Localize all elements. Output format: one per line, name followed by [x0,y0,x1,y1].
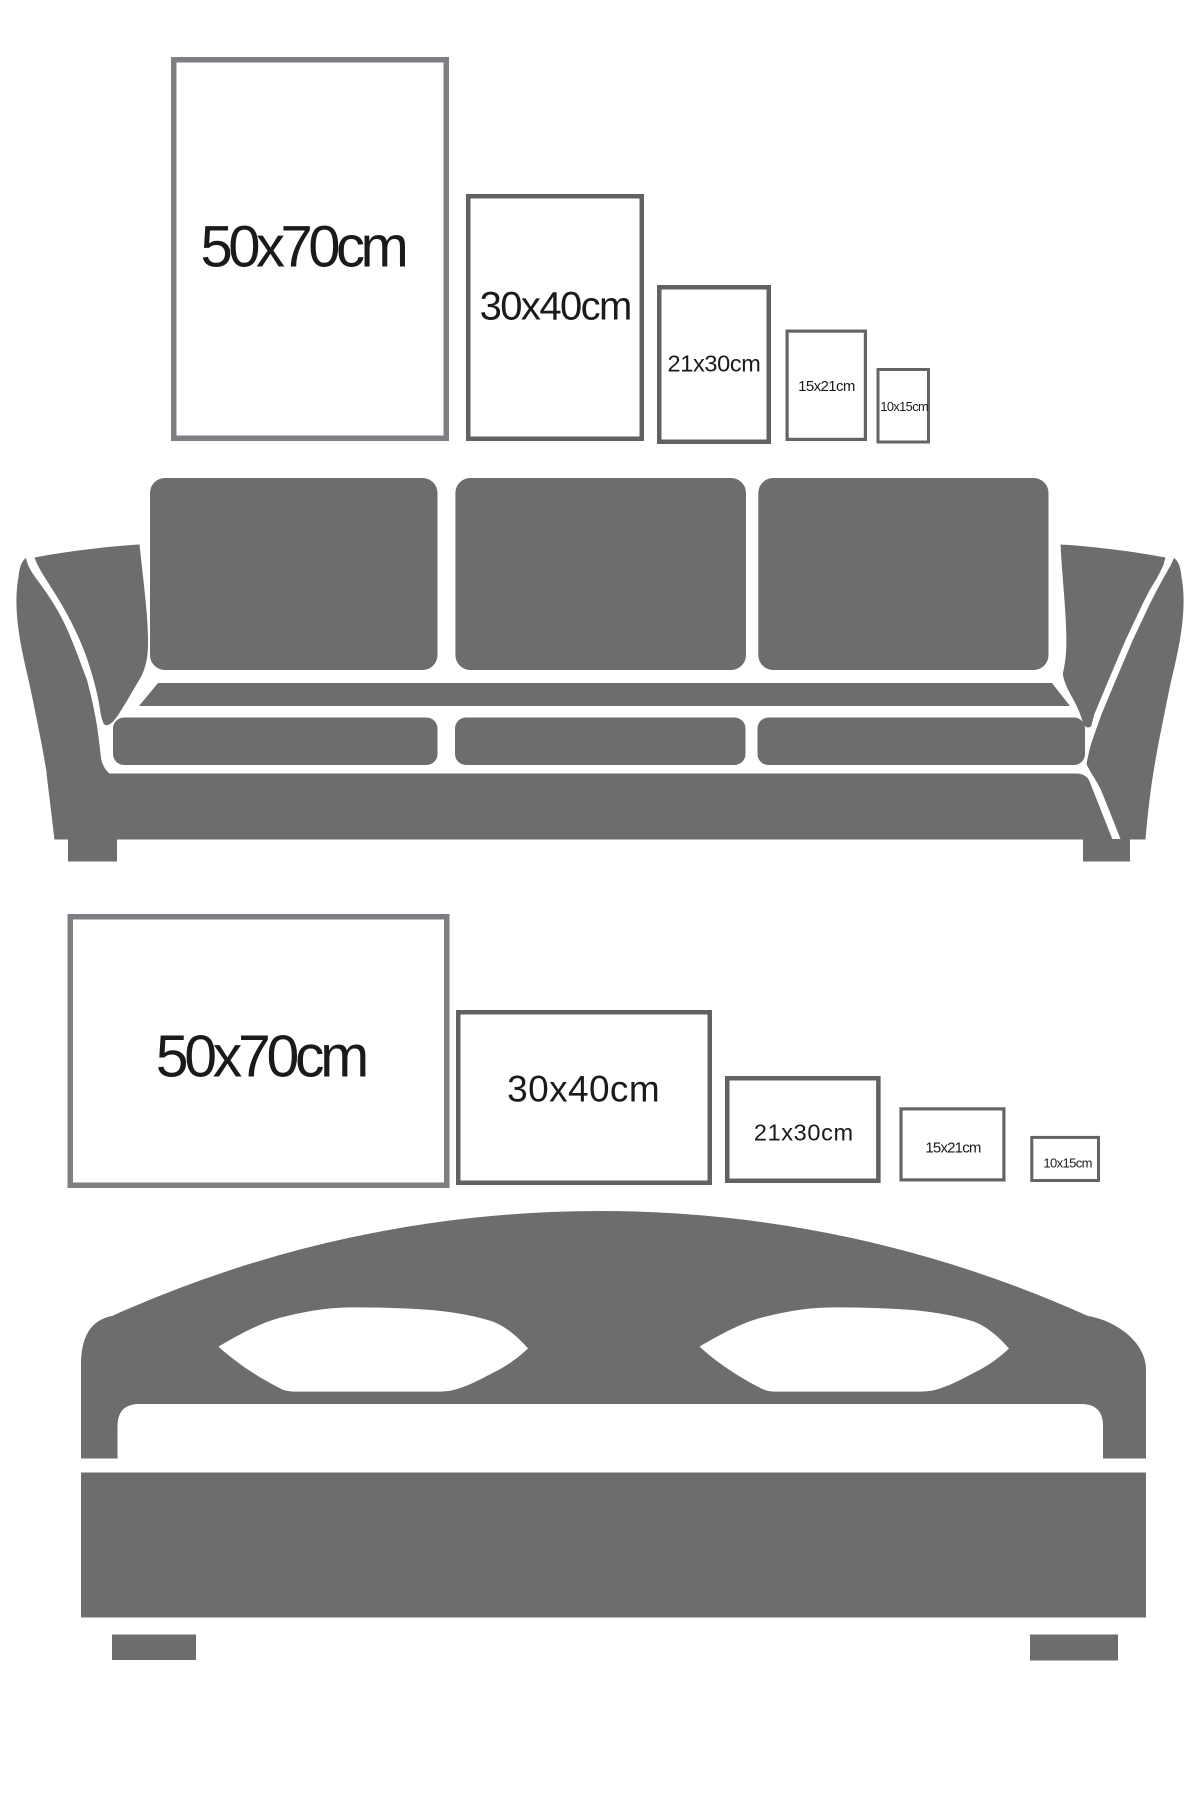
svg-text:10x15cm: 10x15cm [880,399,928,414]
svg-text:50x70cm: 50x70cm [200,214,405,279]
svg-text:30x40cm: 30x40cm [507,1069,660,1110]
svg-text:21x30cm: 21x30cm [668,351,761,377]
svg-text:50x70cm: 50x70cm [156,1024,366,1090]
svg-text:15x21cm: 15x21cm [925,1140,981,1157]
svg-text:10x15cm: 10x15cm [1043,1155,1092,1170]
svg-text:15x21cm: 15x21cm [798,378,855,395]
svg-text:30x40cm: 30x40cm [480,284,631,328]
svg-text:21x30cm: 21x30cm [754,1119,854,1145]
